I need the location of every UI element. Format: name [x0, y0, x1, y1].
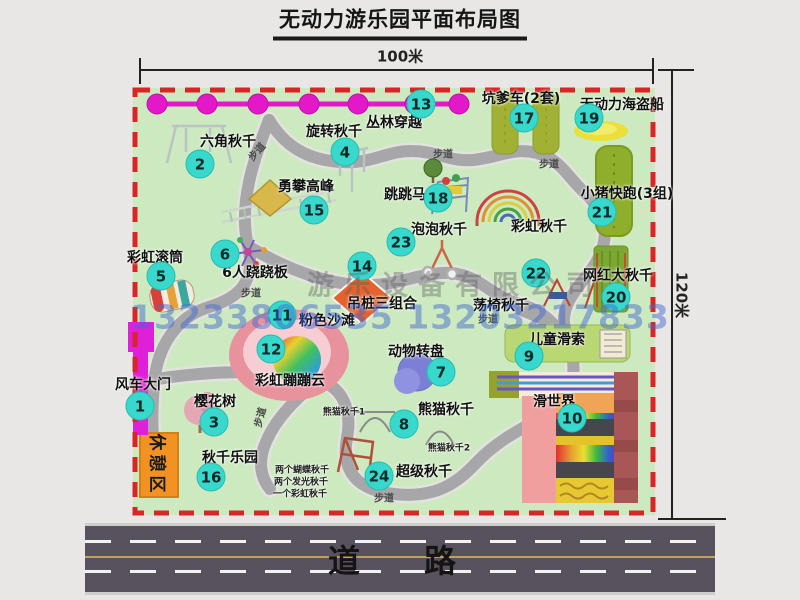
extra-label-0: 彩虹秋千: [511, 216, 567, 236]
attraction-label-12: 彩虹蹦蹦云: [255, 370, 325, 390]
attraction-badge-18: 18: [424, 184, 453, 213]
attraction-badge-24: 24: [365, 462, 394, 491]
attraction-badge-7: 7: [427, 358, 456, 387]
attraction-label-18: 跳跳马: [384, 184, 426, 204]
attraction-badge-3: 3: [200, 408, 229, 437]
attraction-badge-10: 10: [558, 404, 587, 433]
attraction-badge-12: 12: [257, 335, 286, 364]
attraction-label-2: 六角秋千: [200, 131, 256, 151]
walkway-label-3: 步道: [241, 285, 261, 300]
walkway-label-6: 步道: [374, 490, 394, 505]
park-plan-poster: { "title": "无动力游乐园平面布局图", "dimensions": …: [0, 0, 800, 600]
attraction-badge-16: 16: [197, 463, 226, 492]
attraction-badge-23: 23: [387, 228, 416, 257]
attraction-badge-5: 5: [147, 262, 176, 291]
attraction-label-11: 粉色沙滩: [299, 310, 355, 330]
attraction-label-15: 勇攀高峰: [278, 176, 334, 196]
attraction-badge-9: 9: [515, 342, 544, 371]
attraction-badge-1: 1: [126, 392, 155, 421]
walkway-label-2: 步道: [539, 156, 559, 171]
extra-label-1: 熊猫秋千1: [323, 405, 365, 418]
attraction-label-8: 熊猫秋千: [418, 399, 474, 419]
attraction-label-4: 旋转秋千: [306, 121, 362, 141]
attraction-badge-17: 17: [510, 104, 539, 133]
attraction-label-22: 荡椅秋千: [473, 295, 529, 315]
attraction-label-24: 超级秋千: [396, 461, 452, 481]
attraction-badge-19: 19: [575, 104, 604, 133]
walkway-label-1: 步道: [433, 146, 453, 161]
attraction-badge-20: 20: [602, 283, 631, 312]
attraction-badge-8: 8: [390, 410, 419, 439]
attraction-badge-22: 22: [522, 259, 551, 288]
attraction-badge-13: 13: [407, 90, 436, 119]
attraction-label-23: 泡泡秋千: [411, 219, 467, 239]
attraction-badge-4: 4: [331, 138, 360, 167]
attraction-badge-11: 11: [268, 301, 297, 330]
attraction-badge-2: 2: [186, 150, 215, 179]
walkway-label-5: 步道: [249, 405, 269, 428]
rest-area-label: 休憩区: [147, 434, 172, 497]
attraction-badge-15: 15: [300, 196, 329, 225]
extra-label-5: 一个彩虹秋千: [273, 487, 327, 500]
attraction-label-14: 吊桩三组合: [347, 293, 417, 313]
annotation-layer: 风车大门1六角秋千2樱花树3旋转秋千4彩虹滚筒56人跷跷板6动物转盘7熊猫秋千8…: [0, 0, 800, 600]
attraction-badge-6: 6: [211, 240, 240, 269]
attraction-badge-21: 21: [588, 198, 617, 227]
extra-label-2: 熊猫秋千2: [428, 441, 470, 454]
attraction-badge-14: 14: [348, 252, 377, 281]
